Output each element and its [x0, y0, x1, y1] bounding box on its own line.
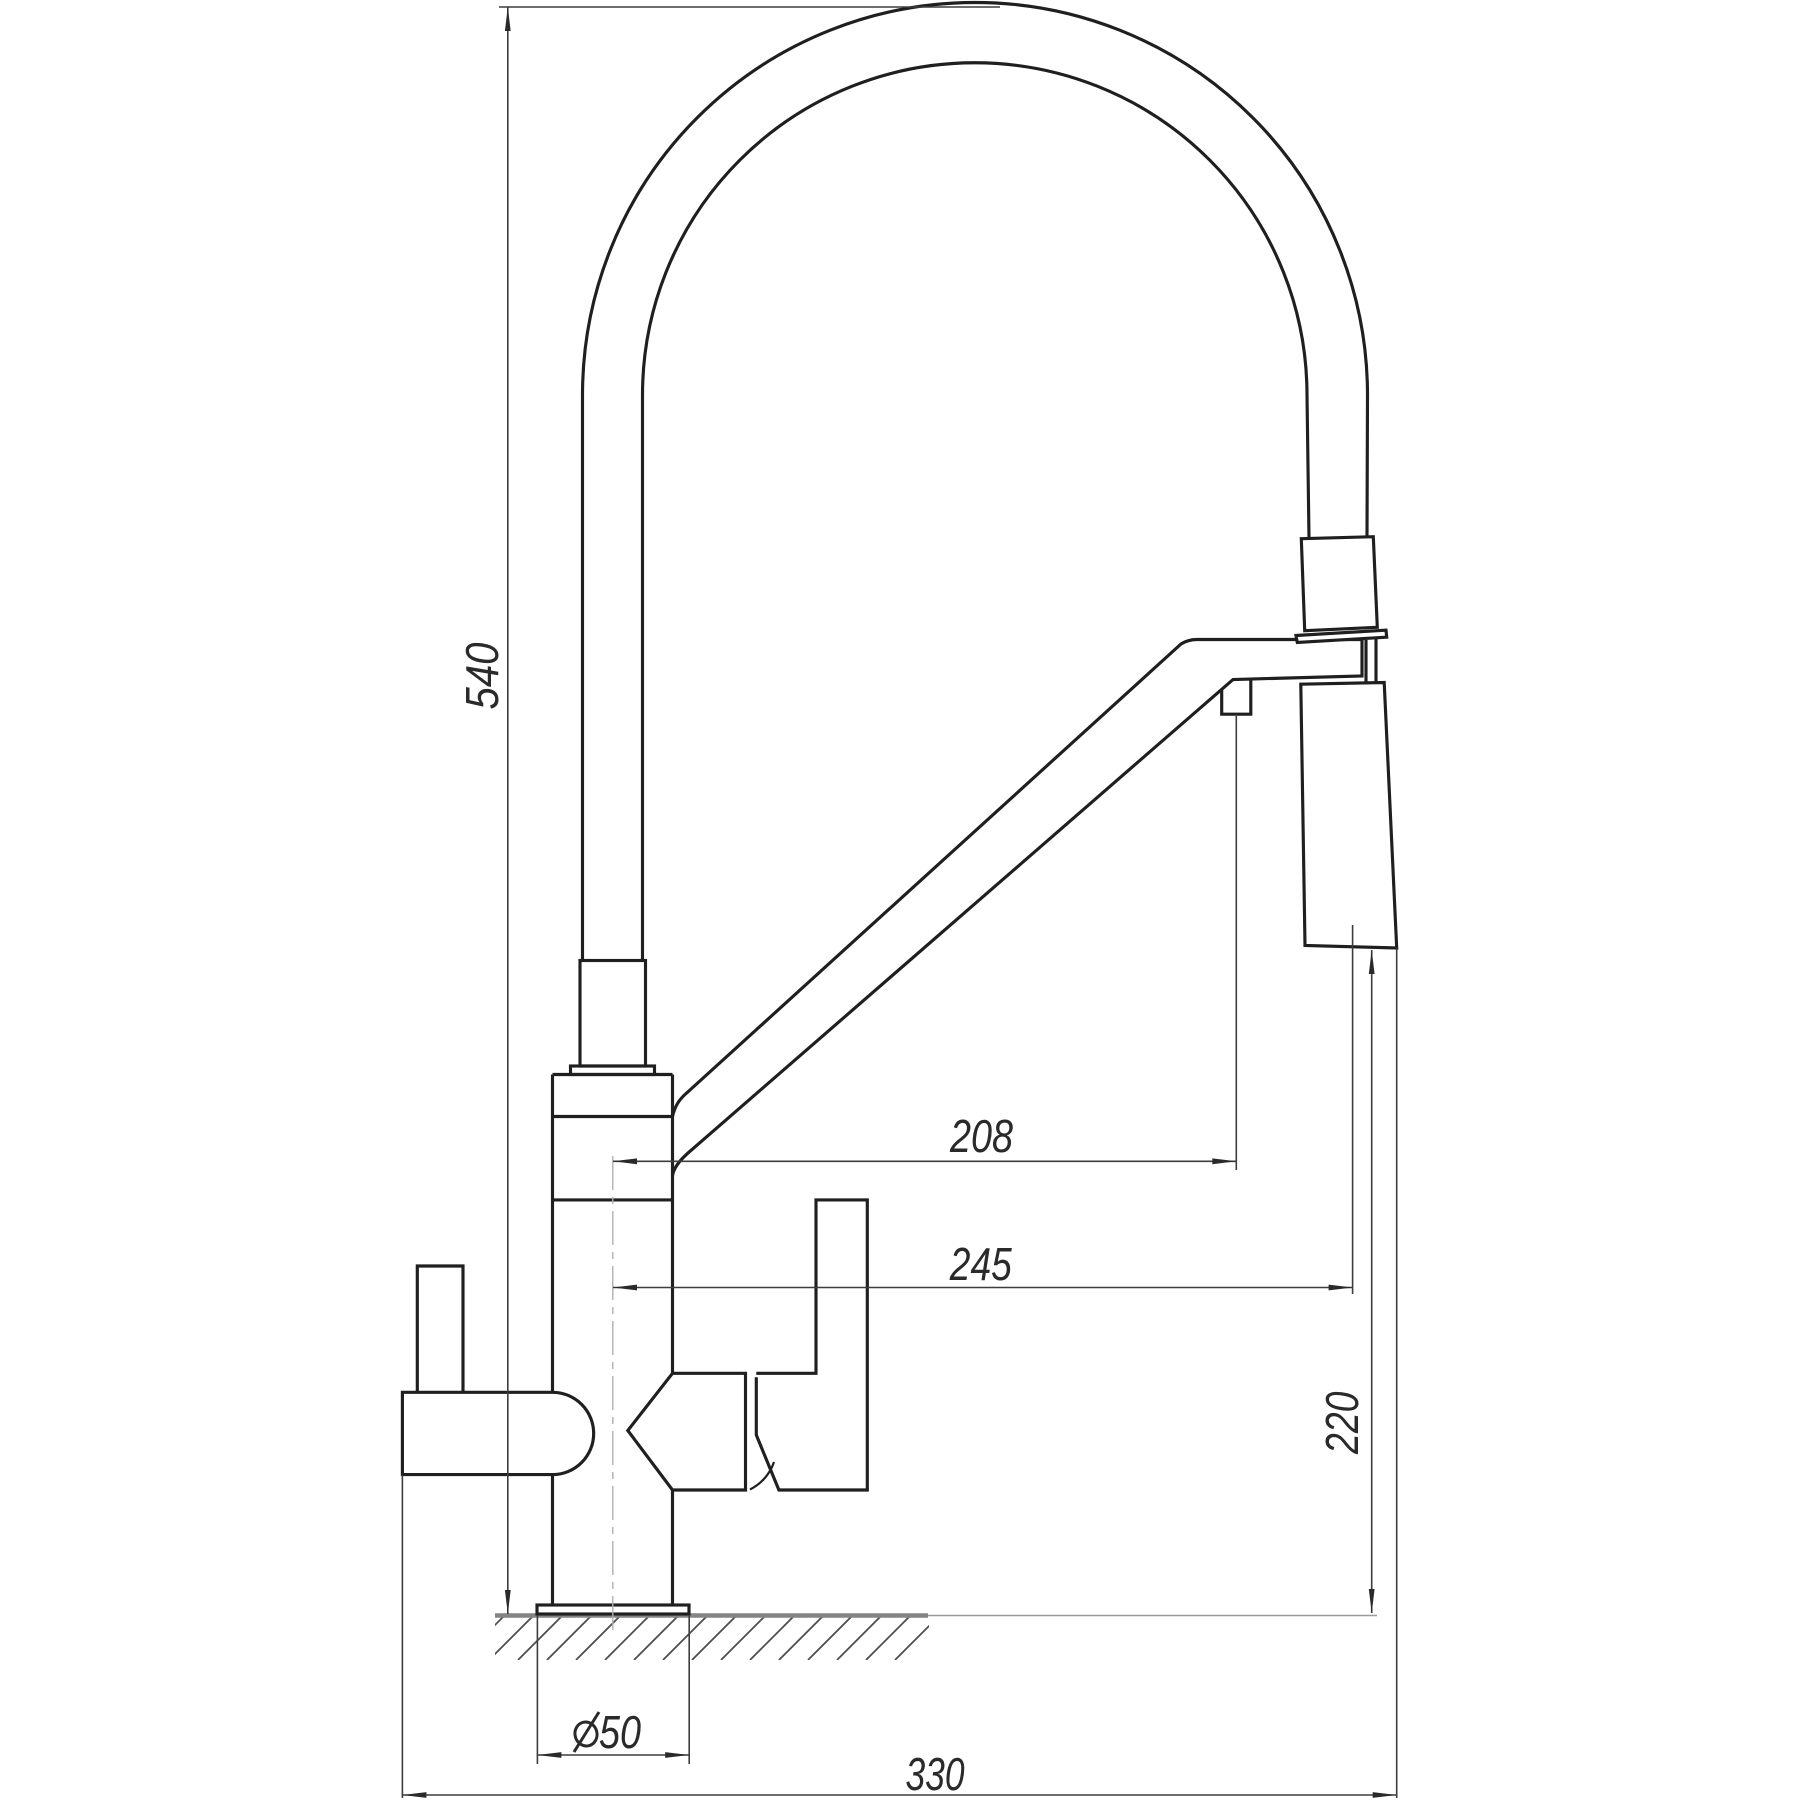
svg-text:330: 330 [906, 1748, 965, 1800]
svg-text:50: 50 [599, 1706, 641, 1758]
svg-text:540: 540 [456, 642, 508, 709]
svg-text:208: 208 [949, 1110, 1013, 1162]
svg-text:245: 245 [949, 1238, 1012, 1290]
svg-text:220: 220 [1316, 1391, 1368, 1455]
